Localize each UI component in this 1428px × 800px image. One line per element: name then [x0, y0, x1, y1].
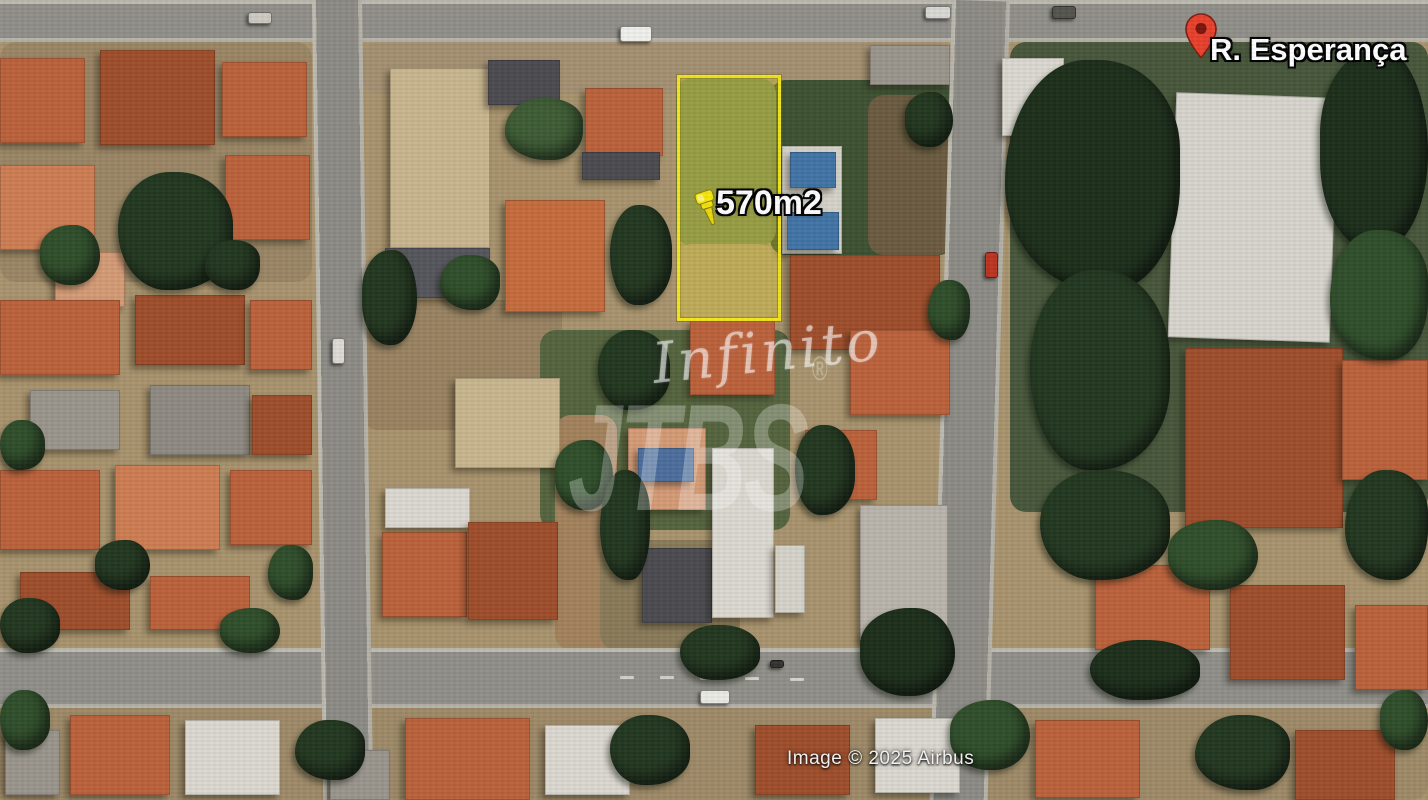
car [985, 252, 998, 278]
building [390, 68, 490, 248]
building [230, 470, 312, 545]
building [1185, 348, 1343, 528]
watermark-brand-text: JTBS® [568, 382, 822, 534]
tree [680, 625, 760, 680]
building [642, 548, 712, 623]
tree [95, 540, 150, 590]
car [925, 6, 951, 19]
building [455, 378, 560, 468]
tree [610, 205, 672, 305]
building [1035, 720, 1140, 798]
tree [362, 250, 417, 345]
tree [1195, 715, 1290, 790]
building [870, 45, 950, 85]
building [100, 50, 215, 145]
satellite-map-image: 570m2 R. Esperança Infinito JTBS® Image … [0, 0, 1428, 800]
building [115, 465, 220, 550]
building [222, 62, 307, 137]
building [1342, 360, 1428, 480]
tree [268, 545, 313, 600]
imagery-attribution: Image © 2025 Airbus [787, 748, 974, 770]
road-marking [790, 678, 804, 681]
watermark-brand-letters: JTBS [568, 373, 806, 543]
lot-area-label: 570m2 [716, 184, 822, 223]
tree [0, 690, 50, 750]
tree [440, 255, 500, 310]
building [250, 300, 312, 370]
car [770, 660, 784, 668]
road-marking [660, 676, 674, 679]
tree [40, 225, 100, 285]
tree [1380, 690, 1428, 750]
tree [295, 720, 365, 780]
building [0, 58, 85, 143]
tree [205, 240, 260, 290]
tree [0, 420, 45, 470]
car [700, 690, 730, 704]
tree [505, 98, 583, 160]
tree [0, 598, 60, 653]
tree [1345, 470, 1428, 580]
building [185, 720, 280, 795]
building [1295, 730, 1395, 800]
tree [1330, 230, 1428, 360]
building [0, 470, 100, 550]
road-marking [745, 677, 759, 680]
tree [860, 608, 955, 696]
building [382, 532, 467, 617]
tree [220, 608, 280, 653]
registered-mark-icon: ® [812, 350, 828, 388]
car [332, 338, 345, 364]
building [1230, 585, 1345, 680]
building [1168, 92, 1338, 343]
tree [1040, 470, 1170, 580]
car [248, 12, 272, 24]
building [135, 295, 245, 365]
building [405, 718, 530, 800]
tree [905, 92, 953, 147]
tree [1005, 60, 1180, 290]
building [70, 715, 170, 795]
building [385, 488, 470, 528]
street-name-label: R. Esperança [1210, 32, 1406, 68]
building [0, 300, 120, 375]
building [225, 155, 310, 240]
road-marking [620, 676, 634, 679]
building [252, 395, 312, 455]
building [505, 200, 605, 312]
building [790, 152, 836, 188]
building [150, 385, 250, 455]
tree [610, 715, 690, 785]
tree [1168, 520, 1258, 590]
building [1355, 605, 1428, 690]
tree [1030, 270, 1170, 470]
road [312, 0, 373, 800]
tree [1090, 640, 1200, 700]
car [620, 26, 652, 42]
building [775, 545, 805, 613]
tree [1320, 50, 1428, 250]
tree [928, 280, 970, 340]
building [468, 522, 558, 620]
building [585, 88, 663, 156]
building [582, 152, 660, 180]
car [1052, 6, 1076, 19]
